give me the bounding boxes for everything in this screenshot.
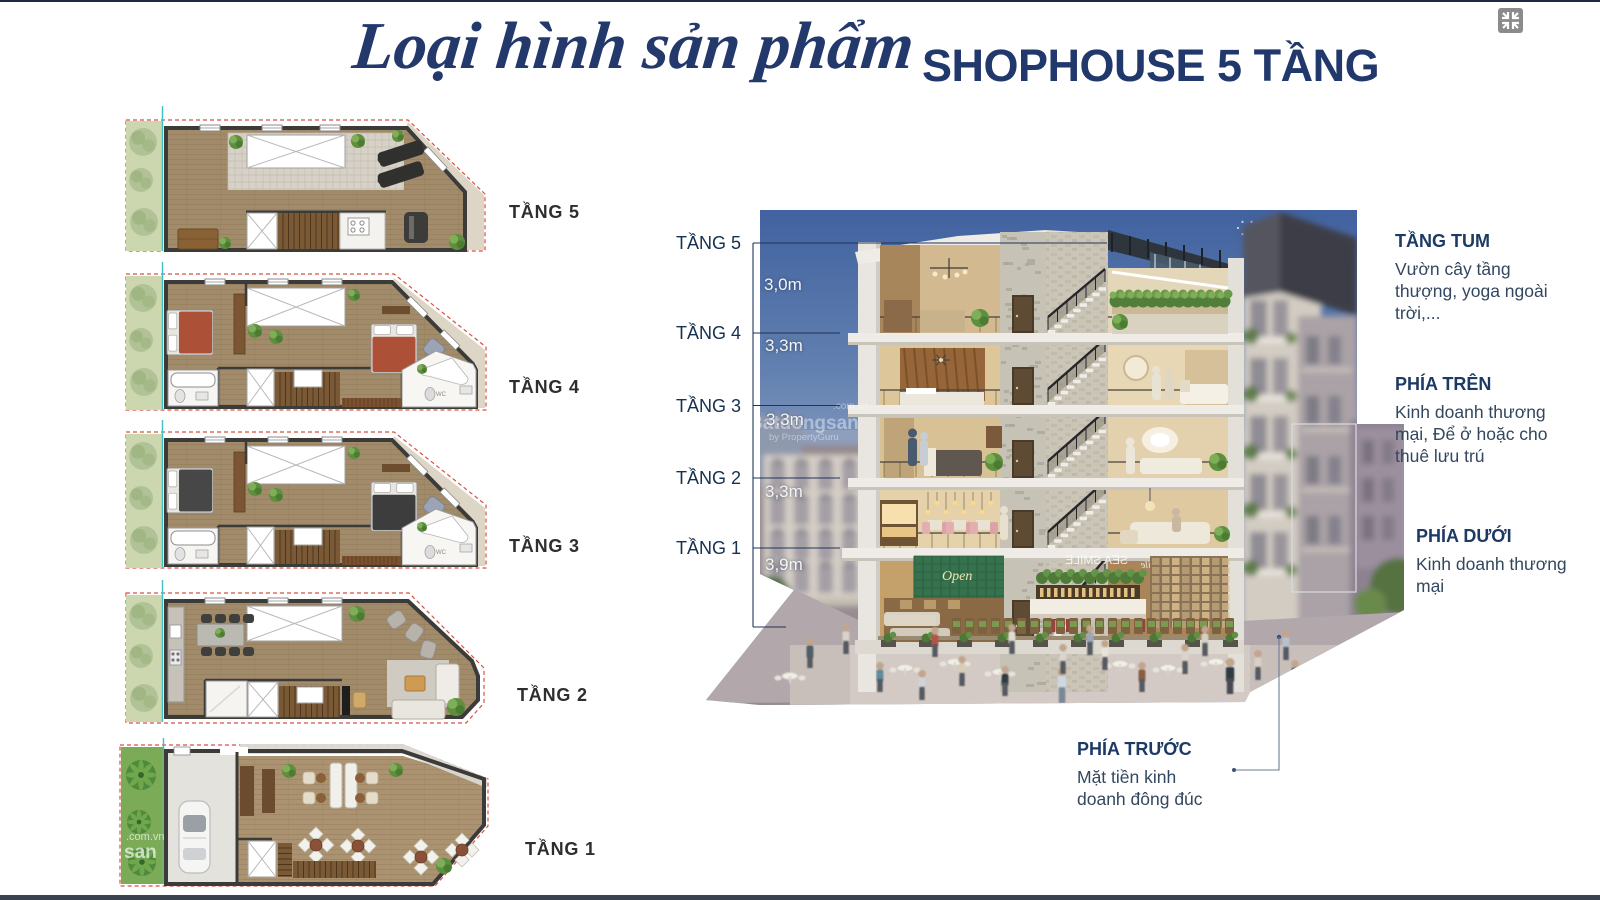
svg-text:WC: WC xyxy=(436,550,447,556)
svg-text:san: san xyxy=(124,842,157,863)
svg-text:WC: WC xyxy=(436,392,447,398)
